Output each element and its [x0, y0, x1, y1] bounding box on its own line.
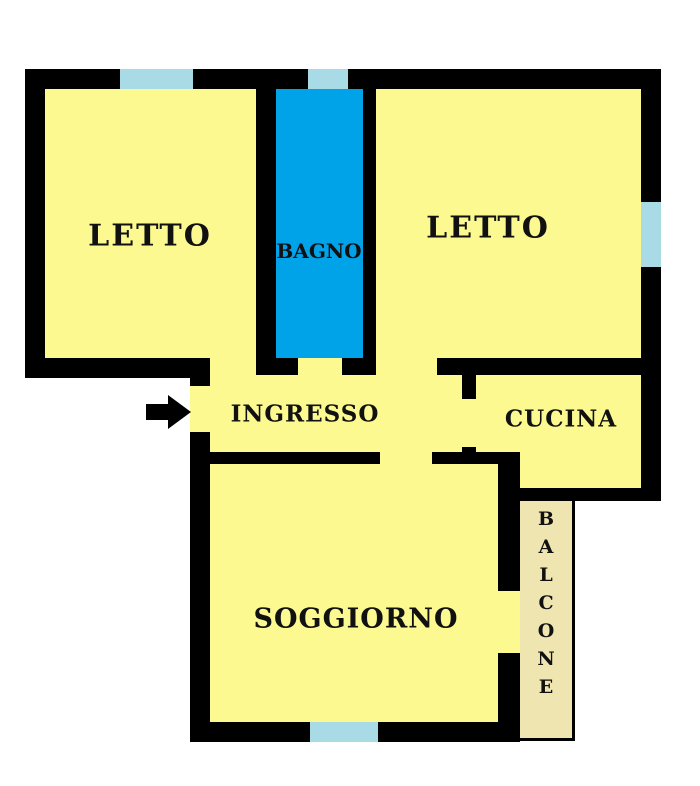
room-bagno: [276, 89, 363, 363]
room-label-cucina: CUCINA: [505, 406, 617, 433]
entrance-arrow-icon: [146, 394, 192, 430]
window-letto-left-top: [120, 69, 193, 89]
room-label-bagno: BAGNO: [276, 239, 361, 263]
wall-soggiorno-top-right: [432, 452, 498, 464]
window-soggiorno-bottom: [310, 722, 378, 742]
wall-outer-left: [25, 69, 45, 378]
wall-soggiorno-top-left: [210, 452, 380, 464]
window-bagno-top: [308, 69, 348, 89]
room-label-letto-left: LETTO: [88, 219, 212, 254]
wall-soggiorno-right-upper: [498, 452, 520, 591]
room-label-letto-right: LETTO: [426, 211, 550, 246]
wall-cucina-bottom: [517, 488, 661, 501]
room-label-ingresso: INGRESSO: [231, 401, 380, 428]
room-label-soggiorno: SOGGIORNO: [254, 604, 459, 635]
wall-letto-right-bottom: [437, 358, 641, 375]
wall-bagno-door-stub-right: [342, 358, 376, 375]
wall-cucina-divider-top: [462, 375, 476, 399]
wall-balcone-right-line: [572, 501, 575, 741]
room-soggiorno: [210, 452, 498, 722]
room-label-balcone: BALCONE: [535, 508, 557, 704]
wall-balcone-bottom-line: [520, 738, 575, 741]
balcone-door-opening: [498, 591, 520, 653]
wall-letto-left-bottom: [25, 358, 210, 378]
wall-soggiorno-left: [190, 432, 210, 742]
wall-outer-right: [641, 69, 661, 501]
wall-bagno-left: [256, 89, 276, 375]
floor-plan: LETTO BAGNO LETTO INGRESSO CUCINA SOGGIO…: [0, 0, 700, 786]
wall-bagno-right: [363, 89, 376, 358]
wall-bagno-door-stub-left: [265, 358, 298, 375]
window-letto-right: [641, 202, 661, 267]
wall-entrance-stub: [190, 378, 210, 386]
